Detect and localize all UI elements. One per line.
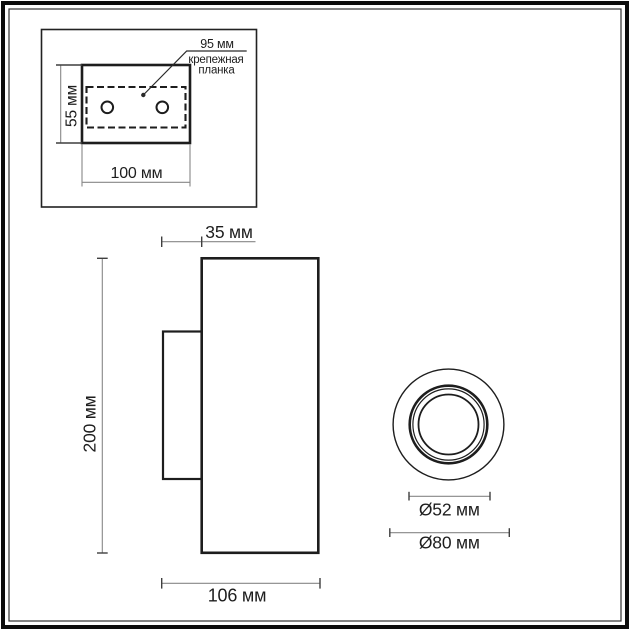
dim-95-label: 95 мм (200, 37, 234, 51)
callout-leader-dot (141, 93, 145, 97)
front-view: Ø52 мм Ø80 мм (390, 369, 510, 552)
diffuser-circle (419, 395, 479, 455)
dim-106-label: 106 мм (208, 586, 267, 606)
dim-100-label: 100 мм (111, 165, 163, 182)
technical-drawing: 95 мм крепежная планка 55 мм 100 мм 35 м… (0, 0, 630, 630)
side-view: 35 мм 200 мм 106 мм (80, 222, 321, 606)
lamp-body-side (202, 258, 319, 553)
wall-plate-side (163, 332, 202, 480)
dim-35-label: 35 мм (205, 222, 252, 242)
dim-55-label: 55 мм (63, 85, 80, 127)
mounting-plate-detail: 95 мм крепежная планка 55 мм 100 мм (42, 30, 257, 208)
mounting-hole-right (157, 102, 169, 114)
bezel-outer-ring (410, 386, 488, 464)
dim-80-label: Ø80 мм (419, 533, 480, 553)
dim-200-label: 200 мм (80, 396, 100, 453)
bezel-inner-ring (413, 389, 484, 460)
callout-label-line2: планка (198, 65, 235, 77)
drawing-page: 95 мм крепежная планка 55 мм 100 мм 35 м… (0, 0, 630, 630)
plate-outline (82, 65, 190, 143)
dim-52-label: Ø52 мм (419, 500, 480, 520)
mounting-hole-left (102, 102, 114, 114)
